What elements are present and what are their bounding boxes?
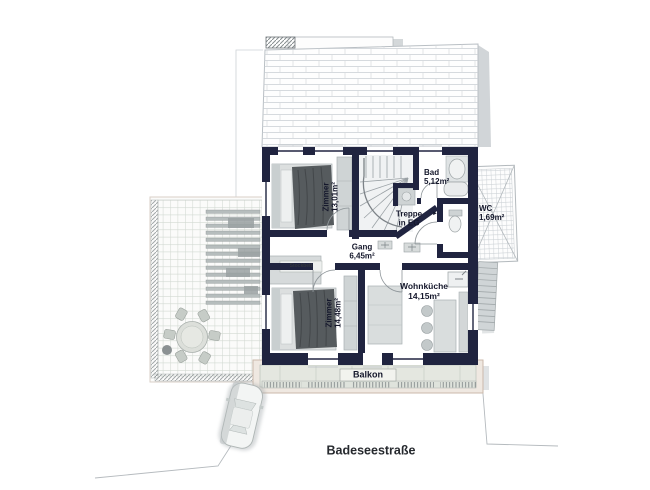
room-label-treppe: Treppe in EG bbox=[396, 210, 422, 229]
treppe-line1: Treppe bbox=[396, 210, 422, 219]
room-name: Zimmer bbox=[325, 298, 334, 328]
room-name: WC bbox=[479, 204, 504, 213]
couch bbox=[368, 286, 402, 344]
exterior-stairs bbox=[475, 262, 498, 331]
terrace-railing-bottom bbox=[155, 374, 263, 381]
chimney bbox=[266, 37, 295, 48]
plant bbox=[162, 345, 172, 355]
stockbett-label: Stockbett bbox=[290, 264, 313, 270]
room-area: 5,12m² bbox=[424, 177, 449, 186]
room-name: Wohnküche bbox=[400, 281, 448, 291]
room-area: 1,69m² bbox=[479, 213, 504, 222]
washbasin bbox=[449, 159, 465, 179]
balcony-label: Balkon bbox=[353, 370, 383, 381]
toilet bbox=[449, 210, 462, 232]
floor-plan-page: Zimmer 13,01m² Bad 5,12m² Treppe in EG ►… bbox=[0, 0, 650, 490]
street-label: Badeseestraße bbox=[327, 444, 416, 459]
floor-plan-drawing bbox=[0, 0, 650, 490]
car bbox=[216, 378, 269, 453]
room-area: 14,48m² bbox=[334, 298, 343, 328]
room-name: Zimmer bbox=[322, 182, 331, 212]
terrace bbox=[150, 197, 265, 382]
kitchen-sink bbox=[448, 271, 468, 287]
treppe-line2: in EG bbox=[396, 219, 422, 228]
ground-floor-outline bbox=[236, 50, 263, 197]
dining-set bbox=[422, 300, 457, 352]
room-label-gang: Gang 6,45m² bbox=[349, 243, 374, 262]
room-name: Gang bbox=[349, 243, 374, 252]
balcony-railing bbox=[264, 382, 476, 388]
room-area: 14,15m² bbox=[400, 291, 448, 301]
room-label-wc: WC 1,69m² bbox=[479, 204, 504, 223]
kitchen-counter bbox=[459, 292, 468, 352]
washing-machine bbox=[398, 188, 415, 205]
room-area: 6,45m² bbox=[349, 252, 374, 261]
room-name: Bad bbox=[424, 168, 449, 177]
stairs-direction-arrow-icon: ► bbox=[432, 211, 438, 217]
room-label-zimmer-bottom: Zimmer 14,48m² bbox=[325, 298, 344, 328]
room-area: 13,01m² bbox=[331, 182, 340, 212]
room-label-zimmer-top: Zimmer 13,01m² bbox=[322, 182, 341, 212]
wardrobe-zimmer-bottom bbox=[344, 276, 357, 350]
terrace-railing-left bbox=[151, 200, 158, 378]
roof bbox=[262, 37, 491, 147]
room-label-bad: Bad 5,12m² bbox=[424, 168, 449, 187]
room-label-wohnkueche: Wohnküche 14,15m² bbox=[400, 281, 448, 301]
